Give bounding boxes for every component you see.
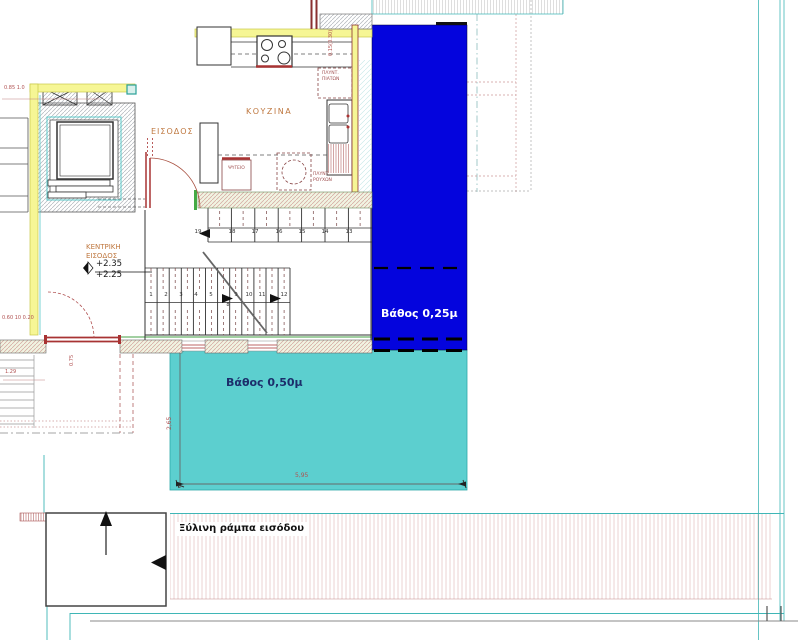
neighbor-steps [0,118,28,212]
entry-platform [46,511,166,606]
stairs-group [98,199,372,340]
step-number: 17 [250,229,260,235]
kitchen-east-wall [352,25,358,192]
washer-label-line2: ΡΟΥΧΩΝ [313,178,332,183]
stove [256,36,292,67]
step-number: 9 [231,292,241,298]
step-number: 16 [274,229,284,235]
door-width-dim: 0.75 [70,355,76,366]
step-number: 1 [146,292,156,298]
step-number: 5 [206,292,216,298]
step-number: 19 [193,229,203,235]
step-number: 3 [176,292,186,298]
step-number: 13 [344,229,354,235]
step-number: 11 [257,292,267,298]
kitchen-label: ΚΟΥΖΙΝΑ [246,107,292,116]
step-number: 8 [223,303,233,309]
south-wall [0,335,372,353]
step-number: 18 [227,229,237,235]
window-opening [248,341,277,351]
door-swing-arc [150,158,200,208]
level-upper: +2.35 [96,260,122,270]
shallow-pool-label: Βάθος 0,50μ [226,377,303,390]
deep-pool [372,25,467,350]
elevator-car [57,122,113,179]
top-left-dim: 0.85 1.0 [4,86,25,92]
deep-pool-group [372,24,467,351]
step-number: 14 [320,229,330,235]
entrance-label: ΕΙΣΟΔΟΣ [151,127,194,136]
elevator-group [0,84,136,335]
entrance-wall-dim: 0.60 10 0.20 [2,316,34,322]
lower-flight-steps [145,268,290,335]
level-lower: +2.25 [96,271,122,281]
main-entrance-label-line1: ΚΕΝΤΡΙΚΗ [86,243,121,251]
upper-flight-steps [208,205,348,242]
shallow-pool-group [170,348,467,490]
tall-cabinet [197,27,231,65]
tall-cabinet [200,123,218,183]
dishwasher-label-line2: ΠΙΑΤΩΝ [322,77,339,82]
wall-marker [127,85,136,94]
upper-deck-hatch [372,0,563,14]
door-jamb [194,190,197,210]
west-wall [30,84,38,335]
step-number: 15 [297,229,307,235]
entry-door [146,138,200,208]
level-marker-icon [83,262,88,274]
step-number: 4 [191,292,201,298]
ramp-edge-hatch [20,513,46,521]
fridge-label: ΨΥΓΕΙΟ [223,166,250,171]
sink [327,100,352,175]
deep-pool-label: Βάθος 0,25μ [381,308,458,321]
left-offset-dim: 1.29 [5,370,16,376]
window-opening [182,341,205,351]
washing-machine [277,153,311,190]
shallow-pool [170,350,467,490]
left-exterior [0,354,133,433]
outer-door-swing [48,292,94,338]
step-number: 12 [279,292,289,298]
floor-plan: ΚΟΥΖΙΝΑ ΕΙΣΟΔΟΣ ΚΕΝΤΡΙΚΗ ΕΙΣΟΔΟΣ +2.35 +… [0,0,800,640]
step-number: 10 [244,292,254,298]
north-wall [30,84,135,92]
shallow-width-dim: 5,95 [295,473,308,480]
ramp-label: Ξύλινη ράμπα εισόδου [175,522,308,536]
kitchen-group [194,0,372,210]
step-number: 2 [161,292,171,298]
shallow-depth-dim: 2,65 [167,417,174,430]
wall-top-dim: 0.15(0.30) [329,30,335,56]
fridge [222,159,251,191]
kitchen-south-wall [198,192,372,208]
washer-label-line1: ΠΛΥΝΤ. [313,172,330,177]
entrance-door-sill [46,338,120,342]
dishwasher-label-line1: ΠΛΥΝΤ. [322,71,339,76]
